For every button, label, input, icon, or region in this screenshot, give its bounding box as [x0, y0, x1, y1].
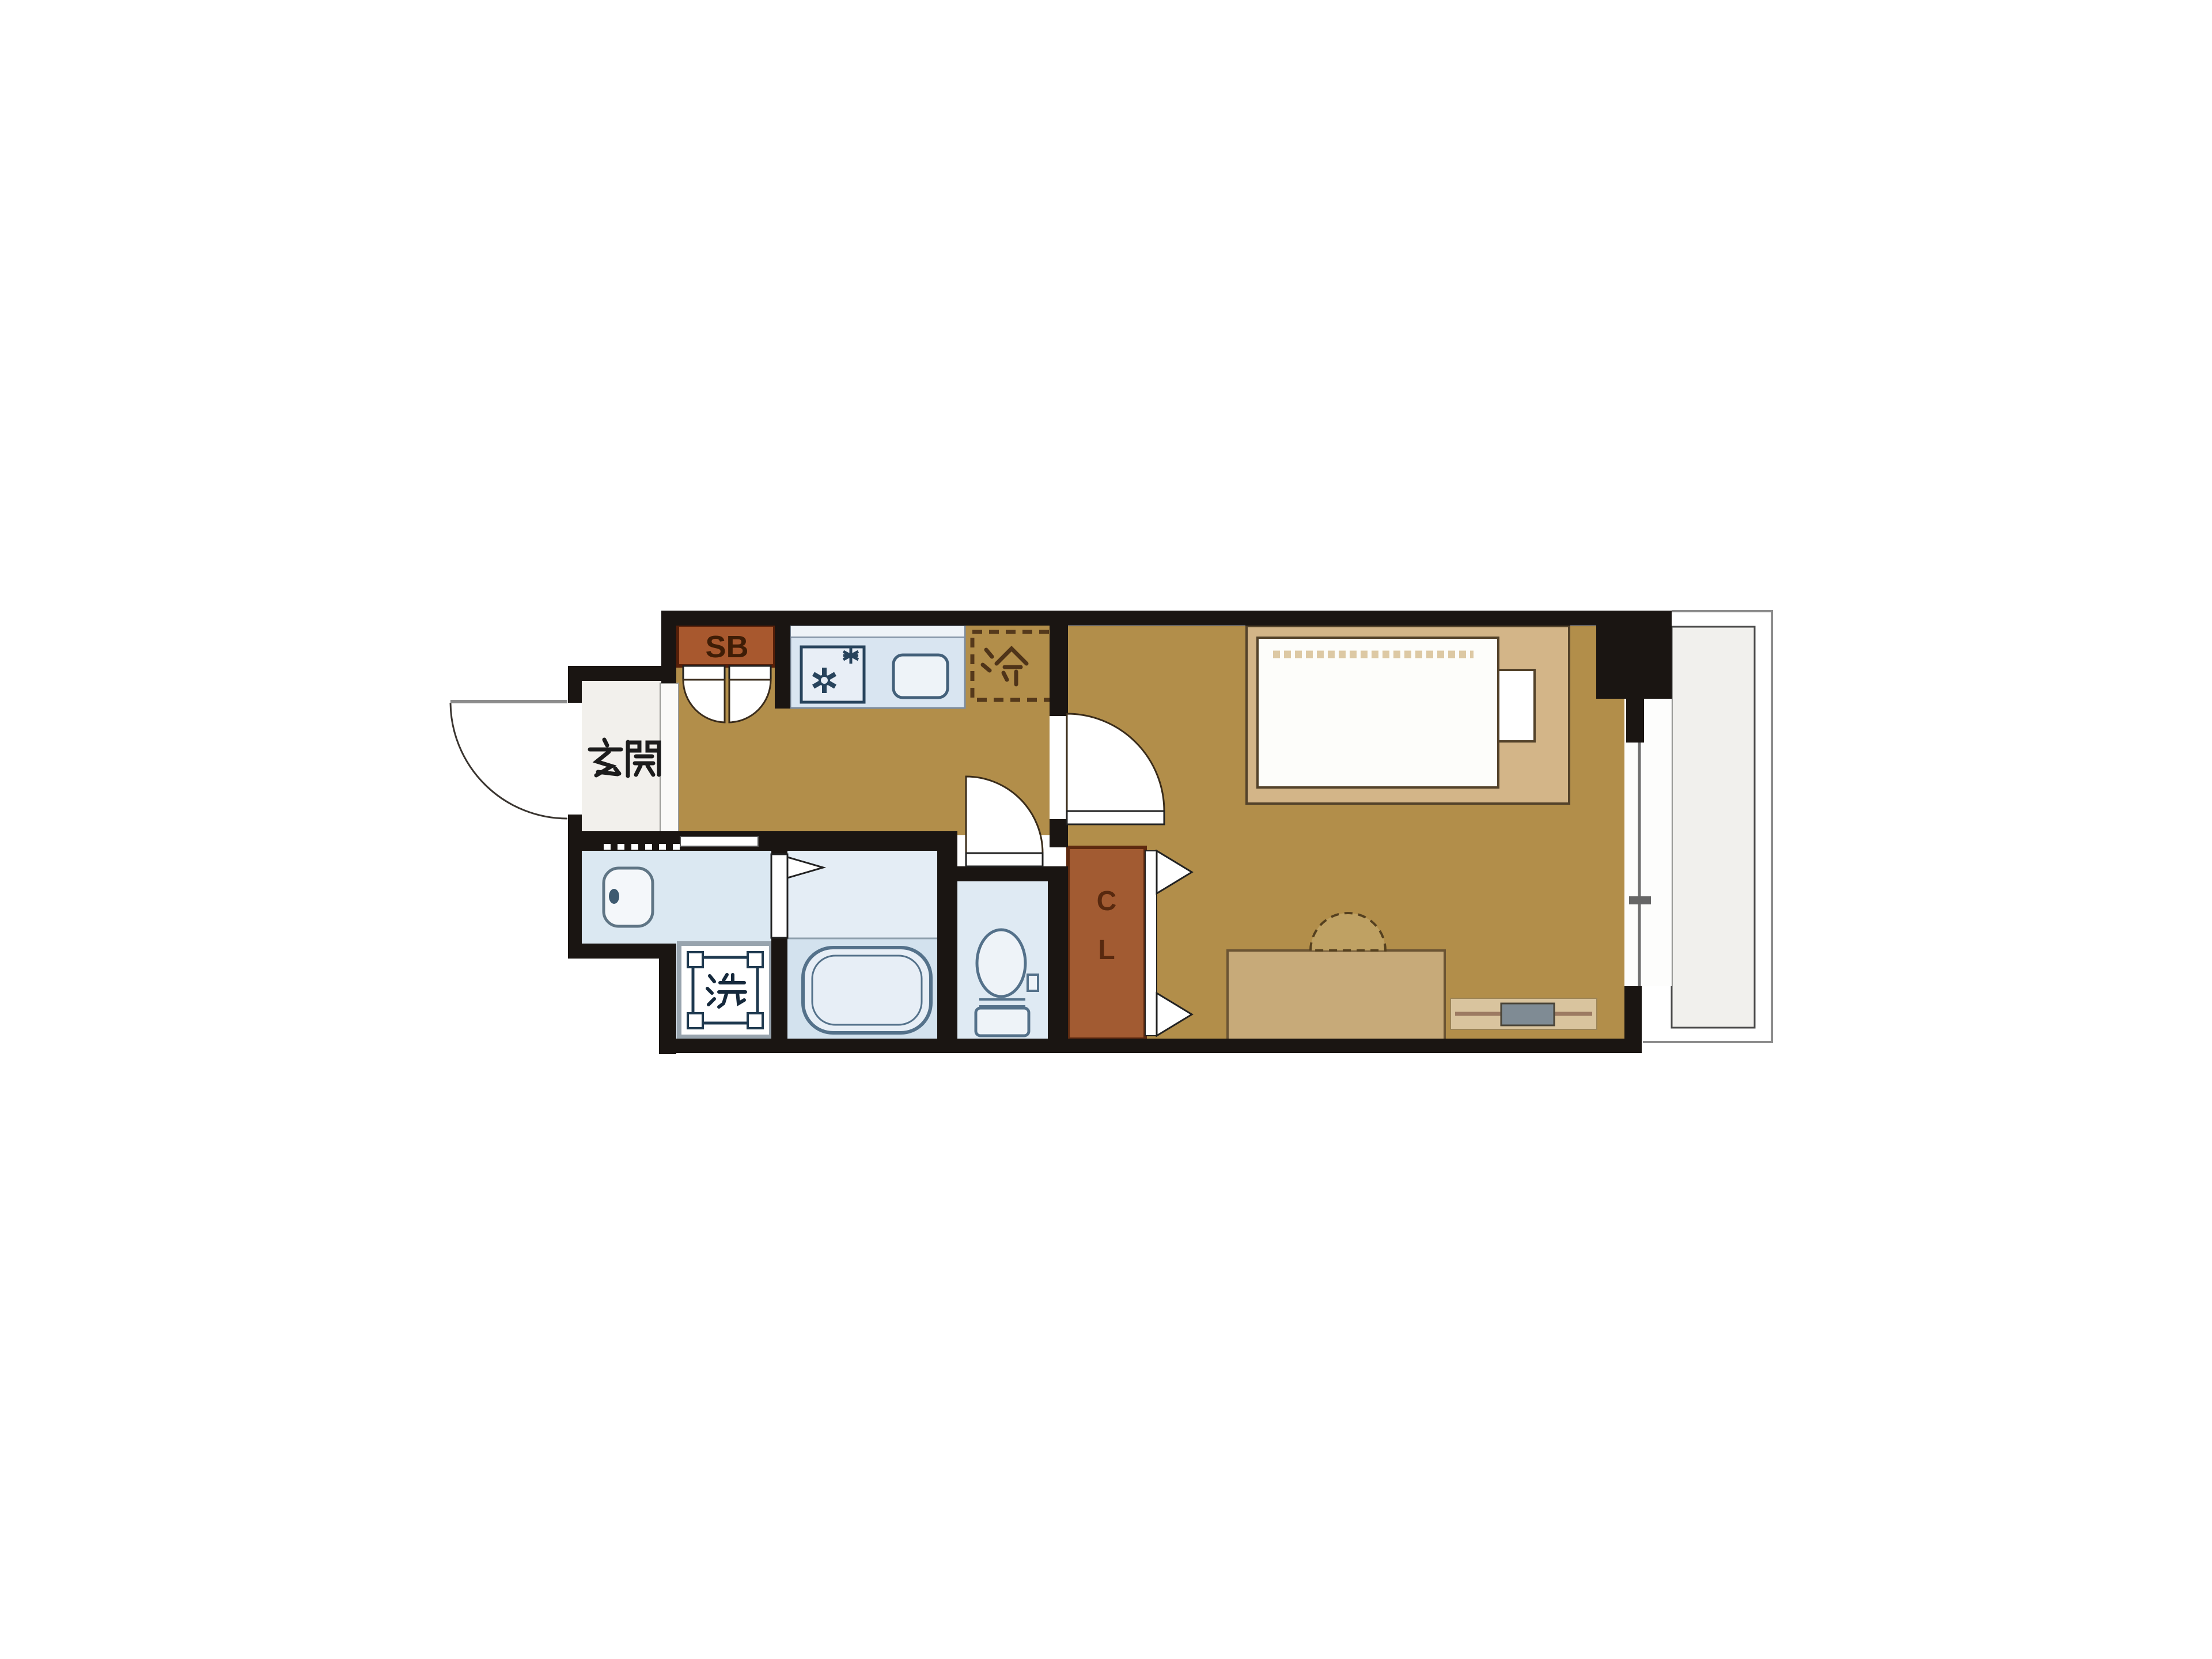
svg-text:C: C — [1097, 886, 1117, 916]
svg-text:SB: SB — [705, 630, 748, 664]
svg-text:L: L — [1098, 935, 1115, 965]
